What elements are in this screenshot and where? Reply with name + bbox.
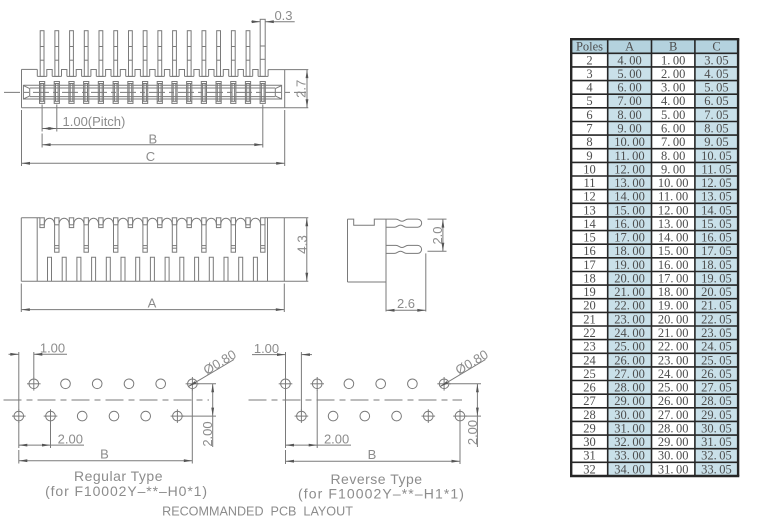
svg-text:25. 05: 25. 05 <box>701 353 732 367</box>
svg-text:29. 00: 29. 00 <box>658 435 689 449</box>
svg-text:7. 05: 7. 05 <box>704 108 728 122</box>
svg-text:3. 05: 3. 05 <box>704 53 728 67</box>
svg-text:12. 00: 12. 00 <box>658 203 689 217</box>
svg-text:23. 00: 23. 00 <box>658 353 689 367</box>
svg-text:28. 00: 28. 00 <box>658 422 689 436</box>
svg-text:15. 00: 15. 00 <box>658 244 689 258</box>
svg-text:B: B <box>368 447 377 462</box>
svg-text:2: 2 <box>586 53 592 67</box>
svg-text:23. 05: 23. 05 <box>701 326 732 340</box>
svg-text:2.00: 2.00 <box>200 421 215 446</box>
svg-text:4: 4 <box>586 81 593 95</box>
svg-text:21. 05: 21. 05 <box>701 299 732 313</box>
svg-text:22. 05: 22. 05 <box>701 312 732 326</box>
svg-text:27: 27 <box>583 394 596 408</box>
svg-text:Poles: Poles <box>576 40 603 54</box>
svg-text:19. 00: 19. 00 <box>658 299 689 313</box>
svg-text:33. 00: 33. 00 <box>614 449 645 463</box>
svg-text:11. 00: 11. 00 <box>615 149 645 163</box>
svg-text:B: B <box>148 131 157 146</box>
svg-text:33. 05: 33. 05 <box>701 462 732 476</box>
svg-text:17: 17 <box>583 258 596 272</box>
svg-text:28. 05: 28. 05 <box>701 394 732 408</box>
svg-text:9. 05: 9. 05 <box>704 135 728 149</box>
svg-text:6. 00: 6. 00 <box>617 81 641 95</box>
svg-text:2.00: 2.00 <box>324 432 349 447</box>
svg-text:14. 00: 14. 00 <box>614 190 645 204</box>
svg-text:30: 30 <box>583 435 596 449</box>
svg-text:C: C <box>712 40 720 54</box>
svg-text:18. 05: 18. 05 <box>701 258 732 272</box>
svg-text:1.00: 1.00 <box>254 341 279 356</box>
svg-text:28. 00: 28. 00 <box>614 381 645 395</box>
svg-text:31: 31 <box>583 449 596 463</box>
svg-text:15. 05: 15. 05 <box>701 217 732 231</box>
svg-text:18: 18 <box>583 272 596 286</box>
svg-text:25. 00: 25. 00 <box>658 381 689 395</box>
svg-text:30. 00: 30. 00 <box>658 449 689 463</box>
svg-text:4. 05: 4. 05 <box>704 67 728 81</box>
svg-text:30. 00: 30. 00 <box>614 408 645 422</box>
svg-text:23: 23 <box>583 340 596 354</box>
svg-text:22. 00: 22. 00 <box>658 340 689 354</box>
svg-text:24. 00: 24. 00 <box>614 326 645 340</box>
svg-text:6: 6 <box>586 108 592 122</box>
svg-text:15. 00: 15. 00 <box>614 203 645 217</box>
svg-text:10: 10 <box>583 162 596 176</box>
svg-text:32: 32 <box>583 462 596 476</box>
svg-text:25: 25 <box>583 367 596 381</box>
svg-text:13. 00: 13. 00 <box>658 217 689 231</box>
svg-text:13. 00: 13. 00 <box>614 176 645 190</box>
svg-text:29. 00: 29. 00 <box>614 394 645 408</box>
svg-text:31. 00: 31. 00 <box>614 422 645 436</box>
svg-text:RECOMMANDED PCB LAYOUT: RECOMMANDED PCB LAYOUT <box>162 505 353 519</box>
svg-text:8. 00: 8. 00 <box>661 149 685 163</box>
svg-text:2.00: 2.00 <box>58 432 83 447</box>
svg-text:5. 00: 5. 00 <box>661 108 685 122</box>
svg-text:8. 05: 8. 05 <box>704 122 728 136</box>
svg-text:15: 15 <box>583 231 596 245</box>
svg-text:26. 00: 26. 00 <box>614 353 645 367</box>
svg-text:24. 05: 24. 05 <box>701 340 732 354</box>
svg-text:1. 00: 1. 00 <box>661 53 685 67</box>
svg-text:11. 05: 11. 05 <box>701 162 731 176</box>
svg-text:16: 16 <box>583 244 596 258</box>
svg-text:12. 05: 12. 05 <box>701 176 732 190</box>
svg-text:A: A <box>625 40 634 54</box>
svg-text:B: B <box>669 40 677 54</box>
svg-text:20. 00: 20. 00 <box>614 272 645 286</box>
svg-text:17. 00: 17. 00 <box>658 272 689 286</box>
svg-text:17. 05: 17. 05 <box>701 244 732 258</box>
svg-text:19. 00: 19. 00 <box>614 258 645 272</box>
svg-text:31. 00: 31. 00 <box>658 462 689 476</box>
svg-text:2.00: 2.00 <box>465 420 480 445</box>
svg-text:5. 00: 5. 00 <box>617 67 641 81</box>
svg-text:26. 05: 26. 05 <box>701 367 732 381</box>
svg-text:26: 26 <box>583 381 596 395</box>
svg-text:27. 00: 27. 00 <box>658 408 689 422</box>
svg-text:3: 3 <box>586 67 592 81</box>
svg-text:19: 19 <box>583 285 596 299</box>
svg-text:20. 05: 20. 05 <box>701 285 732 299</box>
svg-text:18. 00: 18. 00 <box>658 285 689 299</box>
svg-text:1.00(Pitch): 1.00(Pitch) <box>63 114 126 129</box>
svg-text:Regular Type: Regular Type <box>74 468 163 484</box>
svg-text:Ø0.80: Ø0.80 <box>453 347 491 378</box>
svg-text:22: 22 <box>583 326 596 340</box>
svg-text:10. 05: 10. 05 <box>701 149 732 163</box>
svg-text:(for F10002Y–**–H1*1): (for F10002Y–**–H1*1) <box>298 486 465 502</box>
svg-text:27. 00: 27. 00 <box>614 367 645 381</box>
svg-text:8: 8 <box>586 135 592 149</box>
svg-text:12: 12 <box>583 190 596 204</box>
svg-text:4. 00: 4. 00 <box>661 94 685 108</box>
svg-text:A: A <box>148 295 157 310</box>
svg-text:12. 00: 12. 00 <box>614 162 645 176</box>
svg-text:11: 11 <box>583 176 595 190</box>
svg-text:32. 00: 32. 00 <box>614 435 645 449</box>
svg-text:7. 00: 7. 00 <box>661 135 685 149</box>
svg-text:5: 5 <box>586 94 592 108</box>
svg-text:14: 14 <box>583 217 596 231</box>
svg-text:29: 29 <box>583 422 596 436</box>
svg-text:14. 05: 14. 05 <box>701 203 732 217</box>
svg-text:Ø0.80: Ø0.80 <box>201 347 239 378</box>
svg-text:5. 05: 5. 05 <box>704 81 728 95</box>
svg-text:9: 9 <box>586 149 592 163</box>
svg-text:24: 24 <box>583 353 596 367</box>
svg-text:(for F10002Y–**–H0*1): (for F10002Y–**–H0*1) <box>45 483 208 499</box>
svg-text:20. 00: 20. 00 <box>658 312 689 326</box>
svg-text:32. 05: 32. 05 <box>701 449 732 463</box>
svg-text:28: 28 <box>583 408 596 422</box>
svg-text:26. 00: 26. 00 <box>658 394 689 408</box>
svg-text:16. 05: 16. 05 <box>701 231 732 245</box>
svg-text:2.6: 2.6 <box>397 296 415 311</box>
svg-text:7. 00: 7. 00 <box>617 94 641 108</box>
svg-text:13. 05: 13. 05 <box>701 190 732 204</box>
svg-text:21: 21 <box>583 312 596 326</box>
svg-text:6. 00: 6. 00 <box>661 122 685 136</box>
svg-text:2.7: 2.7 <box>293 80 308 98</box>
svg-text:24. 00: 24. 00 <box>658 367 689 381</box>
svg-text:14. 00: 14. 00 <box>658 231 689 245</box>
svg-text:16. 00: 16. 00 <box>614 217 645 231</box>
svg-text:30. 05: 30. 05 <box>701 422 732 436</box>
svg-text:10. 00: 10. 00 <box>658 176 689 190</box>
svg-text:10. 00: 10. 00 <box>614 135 645 149</box>
svg-text:29. 05: 29. 05 <box>701 408 732 422</box>
svg-text:C: C <box>146 149 155 164</box>
svg-text:4.3: 4.3 <box>295 235 310 254</box>
svg-text:18. 00: 18. 00 <box>614 244 645 258</box>
svg-text:B: B <box>100 446 109 461</box>
svg-text:2.0: 2.0 <box>430 226 445 244</box>
svg-text:20: 20 <box>583 299 596 313</box>
svg-text:31. 05: 31. 05 <box>701 435 732 449</box>
svg-text:34. 00: 34. 00 <box>614 462 645 476</box>
svg-text:0.3: 0.3 <box>274 8 292 23</box>
svg-text:13: 13 <box>583 203 596 217</box>
svg-text:23. 00: 23. 00 <box>614 312 645 326</box>
svg-text:11. 00: 11. 00 <box>658 190 688 204</box>
svg-text:9. 00: 9. 00 <box>617 122 641 136</box>
svg-text:25. 00: 25. 00 <box>614 340 645 354</box>
svg-text:27. 05: 27. 05 <box>701 381 732 395</box>
svg-text:8. 00: 8. 00 <box>617 108 641 122</box>
svg-text:2. 00: 2. 00 <box>661 67 685 81</box>
svg-text:1.00: 1.00 <box>40 341 65 356</box>
svg-text:7: 7 <box>586 122 592 136</box>
svg-text:16. 00: 16. 00 <box>658 258 689 272</box>
svg-text:21. 00: 21. 00 <box>614 285 645 299</box>
svg-text:4. 00: 4. 00 <box>617 53 641 67</box>
svg-text:22. 00: 22. 00 <box>614 299 645 313</box>
svg-text:6. 05: 6. 05 <box>704 94 728 108</box>
svg-text:21. 00: 21. 00 <box>658 326 689 340</box>
svg-text:9. 00: 9. 00 <box>661 162 685 176</box>
svg-text:17. 00: 17. 00 <box>614 231 645 245</box>
svg-text:19. 05: 19. 05 <box>701 272 732 286</box>
svg-text:3. 00: 3. 00 <box>661 81 685 95</box>
